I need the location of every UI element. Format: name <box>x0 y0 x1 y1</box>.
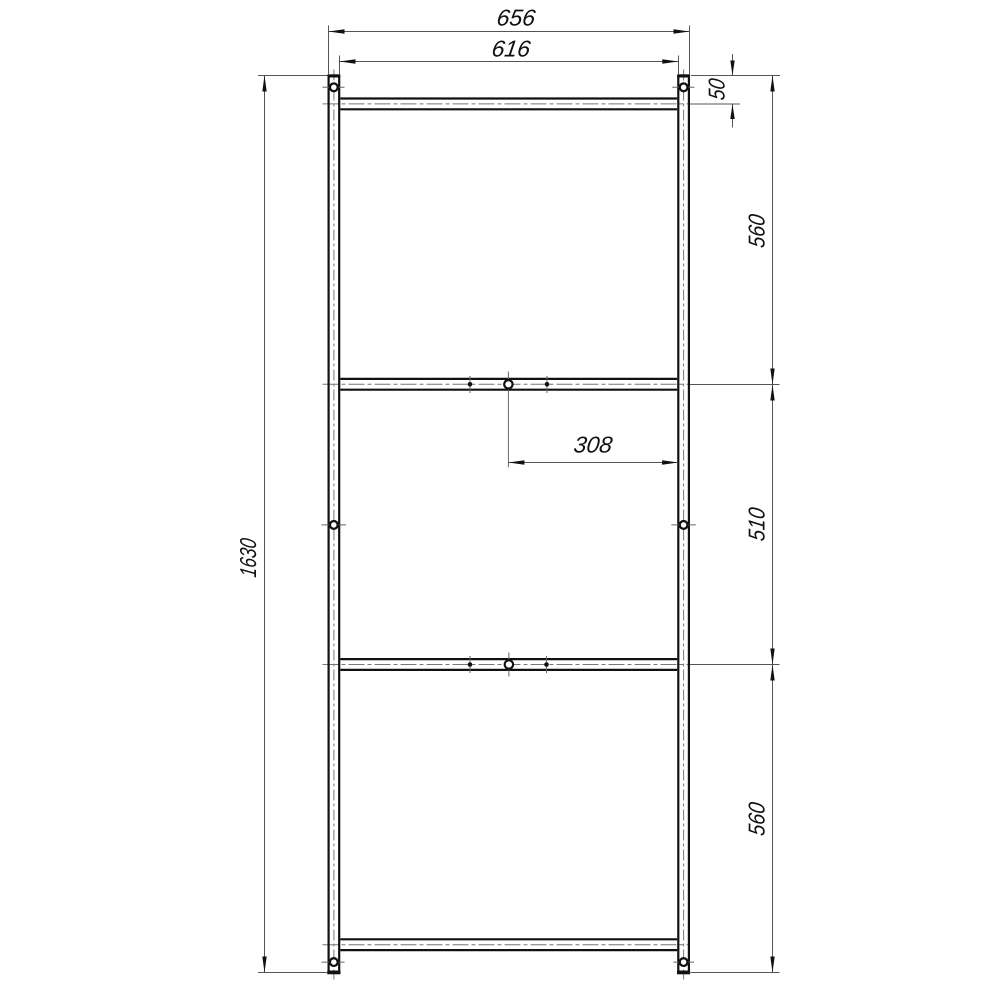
svg-text:560: 560 <box>744 212 770 249</box>
svg-text:510: 510 <box>744 506 770 543</box>
svg-text:616: 616 <box>490 36 532 62</box>
svg-text:50: 50 <box>704 77 730 102</box>
svg-text:560: 560 <box>744 800 770 837</box>
svg-text:656: 656 <box>495 5 537 31</box>
svg-text:308: 308 <box>572 432 614 458</box>
svg-text:1630: 1630 <box>235 537 261 579</box>
